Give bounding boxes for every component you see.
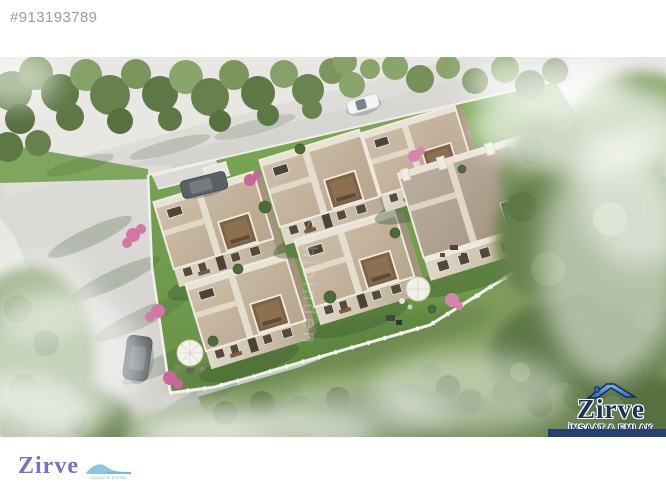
site-watermark: sahibinden xyxy=(298,219,320,346)
aerial-render-scene: sahibinden xyxy=(0,57,666,437)
listing-id: #913193789 xyxy=(10,9,97,26)
property-photo[interactable]: sahibinden Zirve İNŞAAT & EMLAK xyxy=(0,57,666,437)
footer-logo-art: İnşaat & Emlak xyxy=(86,461,136,482)
footer-logo-text: Zirve xyxy=(18,454,79,478)
footer: Zirve İnşaat & Emlak xyxy=(0,437,666,500)
watermark-underline-bar xyxy=(548,429,666,437)
wave-icon xyxy=(86,461,132,475)
footer-logo-tagline: İnşaat & Emlak xyxy=(90,476,127,481)
listing-image-page: #913193789 xyxy=(0,0,666,500)
footer-logo: Zirve İnşaat & Emlak xyxy=(18,454,136,482)
